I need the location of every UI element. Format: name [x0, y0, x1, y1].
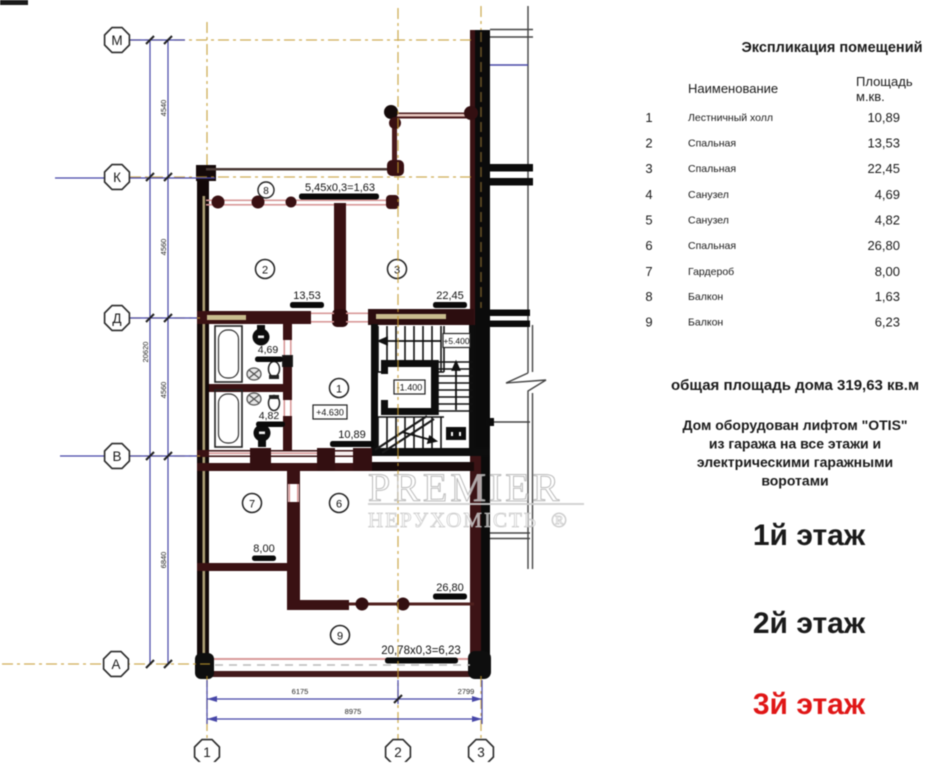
svg-text:10,89: 10,89: [338, 429, 366, 441]
svg-text:8,00: 8,00: [253, 543, 274, 555]
svg-text:+5.400: +5.400: [443, 336, 470, 346]
svg-text:2: 2: [394, 745, 402, 760]
svg-text:3: 3: [477, 745, 485, 760]
svg-text:Спальная: Спальная: [688, 138, 736, 150]
svg-text:1: 1: [336, 384, 342, 396]
svg-text:Наименование: Наименование: [688, 81, 778, 96]
svg-text:8: 8: [263, 186, 269, 197]
svg-text:Площадь: Площадь: [856, 74, 913, 89]
svg-text:4,69: 4,69: [875, 187, 900, 202]
svg-text:8: 8: [645, 289, 652, 304]
svg-text:4560: 4560: [159, 382, 168, 399]
svg-text:4,82: 4,82: [259, 410, 280, 422]
svg-text:9: 9: [337, 631, 343, 643]
svg-text:4,82: 4,82: [875, 213, 900, 228]
svg-text:8,00: 8,00: [875, 264, 900, 279]
svg-text:Спальная: Спальная: [688, 240, 736, 252]
svg-text:А: А: [111, 657, 120, 672]
svg-text:воротами: воротами: [761, 473, 828, 489]
svg-text:К: К: [113, 170, 121, 185]
svg-text:6: 6: [336, 499, 342, 511]
svg-text:Экспликация помещений: Экспликация помещений: [741, 40, 922, 56]
svg-text:Балкон: Балкон: [688, 317, 723, 329]
svg-text:3: 3: [645, 161, 652, 176]
svg-text:26,80: 26,80: [436, 582, 464, 594]
svg-text:22,45: 22,45: [436, 290, 464, 302]
svg-text:7: 7: [249, 499, 255, 511]
svg-text:2й этаж: 2й этаж: [753, 607, 866, 640]
svg-text:1: 1: [645, 110, 652, 125]
svg-text:7: 7: [645, 264, 652, 279]
svg-text:Гардероб: Гардероб: [688, 266, 734, 278]
svg-text:4560: 4560: [159, 239, 168, 256]
svg-text:2: 2: [645, 136, 652, 151]
svg-text:9: 9: [645, 315, 652, 330]
svg-text:электрическими гаражными: электрическими гаражными: [697, 454, 893, 470]
svg-text:В: В: [112, 449, 121, 464]
svg-text:1й этаж: 1й этаж: [753, 519, 866, 552]
svg-text:13,53: 13,53: [867, 136, 900, 151]
svg-text:М: М: [111, 33, 122, 48]
svg-text:1,63: 1,63: [875, 289, 900, 304]
svg-text:5,45x0,3=1,63: 5,45x0,3=1,63: [305, 182, 375, 194]
svg-text:8975: 8975: [345, 707, 362, 716]
svg-text:10,89: 10,89: [867, 110, 900, 125]
svg-text:1: 1: [203, 745, 211, 760]
svg-text:4: 4: [645, 187, 652, 202]
svg-text:2799: 2799: [458, 687, 475, 696]
svg-text:м.кв.: м.кв.: [856, 89, 885, 104]
svg-text:Спальная: Спальная: [688, 163, 736, 175]
svg-text:из гаража на все этажи и: из гаража на все этажи и: [709, 436, 881, 452]
svg-text:Санузел: Санузел: [688, 189, 729, 201]
svg-text:НЕРУХОМІСТЬ: НЕРУХОМІСТЬ: [368, 508, 538, 532]
svg-text:13,53: 13,53: [293, 290, 321, 302]
svg-text:6175: 6175: [292, 687, 309, 696]
svg-text:+4.630: +4.630: [316, 408, 344, 418]
svg-text:26,80: 26,80: [867, 238, 900, 253]
svg-text:®: ®: [551, 508, 567, 532]
svg-text:6,23: 6,23: [875, 315, 900, 330]
svg-text:22,45: 22,45: [867, 161, 900, 176]
svg-text:3й этаж: 3й этаж: [753, 688, 866, 721]
svg-text:5: 5: [645, 213, 652, 228]
svg-text:Дом оборудован лифтом "OTIS": Дом оборудован лифтом "OTIS": [682, 417, 907, 433]
svg-text:общая площадь дома 319,63 кв.м: общая площадь дома 319,63 кв.м: [671, 377, 919, 394]
svg-text:6840: 6840: [159, 552, 168, 569]
svg-text:20,78x0,3=6,23: 20,78x0,3=6,23: [381, 645, 461, 657]
svg-text:Д: Д: [112, 311, 121, 326]
svg-text:4540: 4540: [159, 100, 168, 117]
svg-text:6: 6: [645, 238, 652, 253]
svg-text:Санузел: Санузел: [688, 215, 729, 227]
svg-text:3: 3: [394, 265, 400, 277]
svg-text:4,69: 4,69: [258, 344, 279, 356]
svg-text:2: 2: [262, 265, 268, 277]
svg-text:20620: 20620: [141, 342, 150, 363]
svg-text:-1.400: -1.400: [397, 383, 423, 393]
svg-text:Лестничный холл: Лестничный холл: [688, 112, 773, 124]
svg-text:Балкон: Балкон: [688, 291, 723, 303]
